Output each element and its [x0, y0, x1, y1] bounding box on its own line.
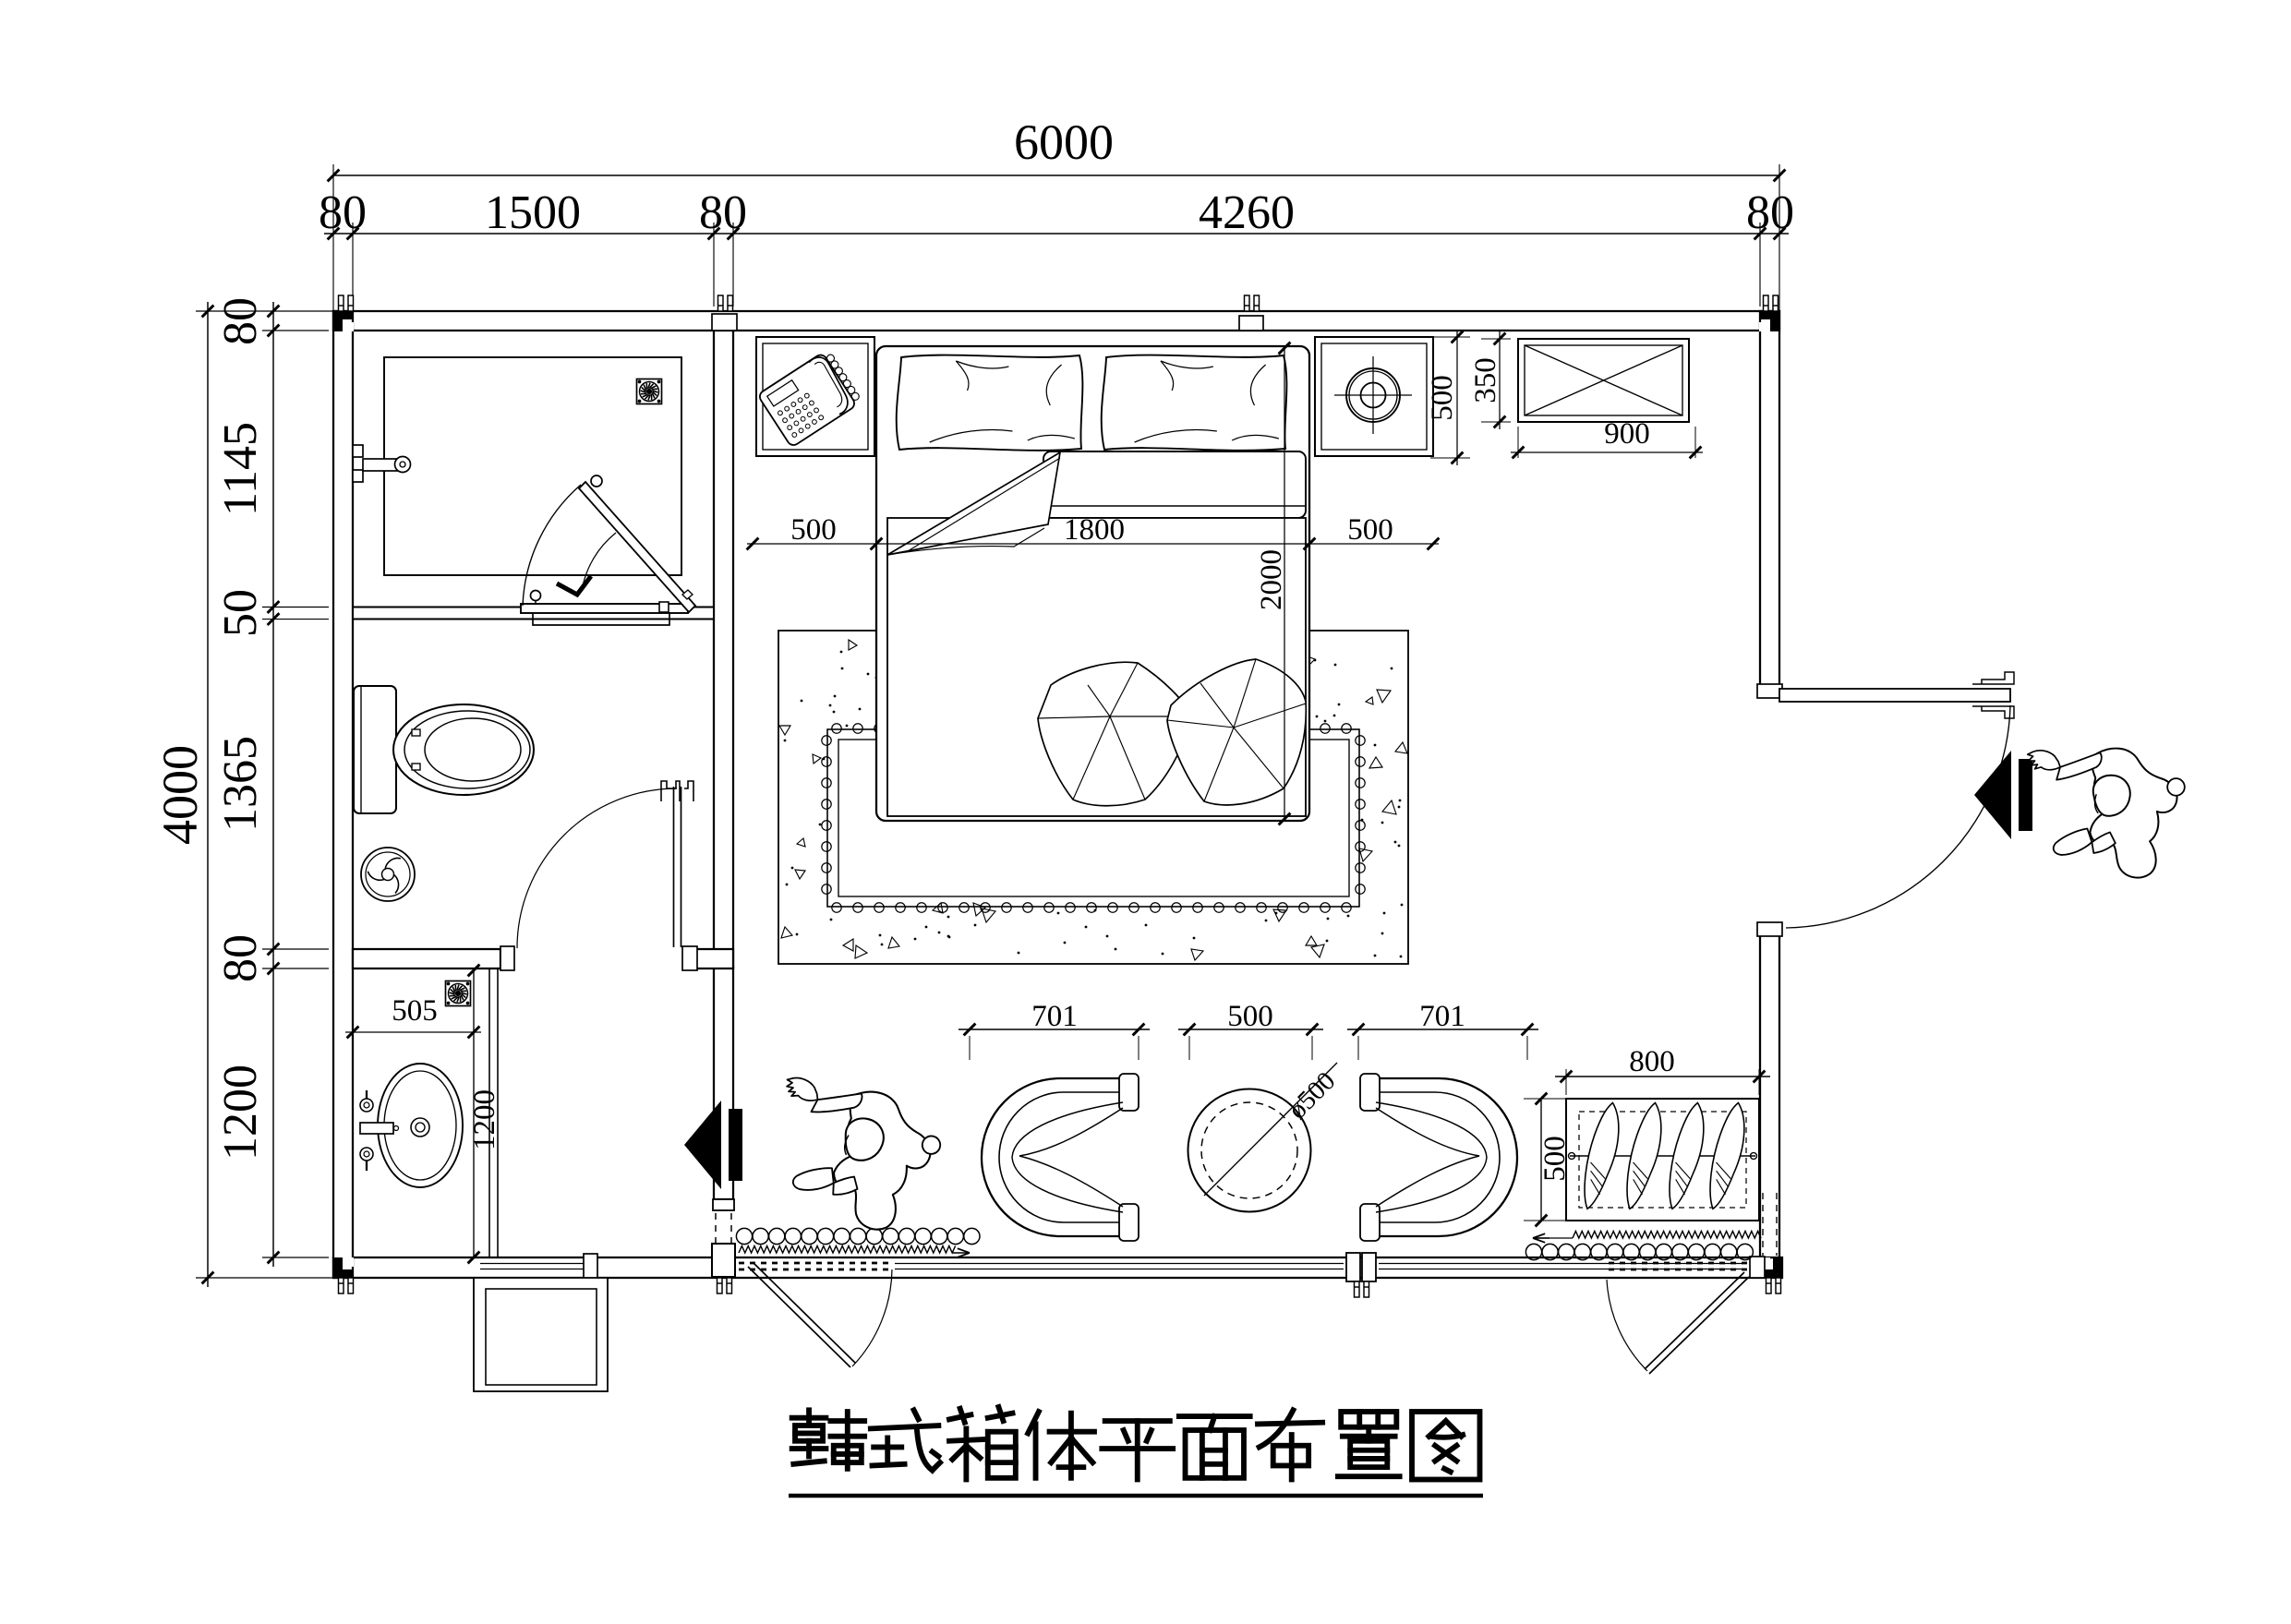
svg-text:505: 505 — [392, 994, 438, 1028]
svg-text:701: 701 — [1419, 1000, 1465, 1033]
svg-text:80: 80 — [699, 186, 747, 239]
svg-text:1500: 1500 — [485, 186, 581, 239]
svg-text:80: 80 — [214, 934, 267, 982]
svg-text:500: 500 — [1227, 1000, 1273, 1033]
svg-text:4260: 4260 — [1199, 186, 1295, 239]
svg-text:1365: 1365 — [214, 736, 267, 832]
svg-text:800: 800 — [1629, 1045, 1675, 1078]
svg-text:1200: 1200 — [214, 1065, 267, 1161]
svg-text:1200: 1200 — [468, 1089, 501, 1150]
svg-text:1800: 1800 — [1064, 513, 1125, 547]
svg-text:701: 701 — [1031, 1000, 1078, 1033]
svg-text:500: 500 — [790, 513, 837, 547]
svg-text:80: 80 — [319, 186, 367, 239]
svg-text:80: 80 — [214, 297, 267, 345]
svg-text:350: 350 — [1469, 357, 1502, 403]
svg-text:80: 80 — [1746, 186, 1794, 239]
svg-text:500: 500 — [1426, 375, 1459, 421]
svg-text:50: 50 — [214, 589, 267, 637]
svg-text:6000: 6000 — [1014, 114, 1114, 170]
svg-text:2000: 2000 — [1255, 549, 1288, 610]
svg-text:4000: 4000 — [152, 745, 208, 845]
svg-text:500: 500 — [1538, 1136, 1572, 1182]
svg-text:900: 900 — [1604, 417, 1650, 451]
svg-text:1145: 1145 — [214, 422, 267, 516]
svg-text:500: 500 — [1347, 513, 1393, 547]
